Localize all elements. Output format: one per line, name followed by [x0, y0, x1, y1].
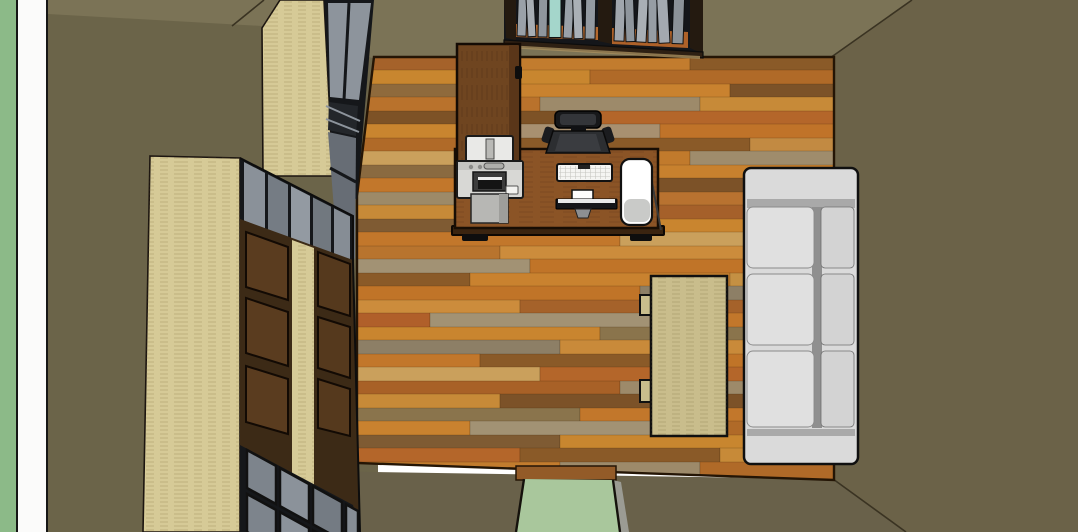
right-wall	[830, 0, 1078, 532]
floor-plank	[430, 313, 650, 328]
floor-plank	[700, 97, 834, 112]
sofa-armrest-shadow-bottom	[747, 429, 855, 436]
book	[614, 0, 626, 41]
floor-plank	[357, 273, 470, 287]
grass-edge-line	[16, 0, 18, 532]
white-chair-shade	[624, 199, 650, 222]
sofa-back-cushion	[821, 274, 854, 345]
floor-plank	[357, 394, 500, 409]
tall-cabinet-top-grain	[262, 0, 333, 176]
chair-headrest-pad	[560, 114, 596, 125]
glass-pane	[291, 186, 310, 246]
floor-plank	[357, 151, 470, 166]
floor-plank	[357, 408, 580, 422]
sofa-seat-cushion	[747, 351, 814, 427]
sofa-back-cushions	[821, 207, 854, 427]
door-panel	[318, 317, 350, 378]
doorway	[516, 466, 629, 532]
sofa-back-cushion	[821, 207, 854, 268]
floor-plank	[520, 448, 720, 463]
floor-plank	[357, 354, 480, 368]
book	[526, 0, 536, 37]
printer-feed-slot	[484, 163, 504, 169]
book	[672, 0, 685, 44]
floor-plank	[357, 246, 500, 260]
door-panel	[318, 252, 350, 316]
glass-pane	[334, 208, 350, 262]
floor-plank	[690, 57, 834, 71]
printer-output-tray	[506, 186, 518, 194]
glass-pane	[313, 197, 331, 254]
coffee-table	[640, 276, 727, 436]
book	[585, 0, 596, 39]
keyboard-function-row	[578, 165, 590, 169]
paper-stack	[478, 180, 502, 189]
floor-plank	[357, 448, 520, 463]
door-opening-green	[516, 479, 620, 532]
floor-plank	[357, 84, 470, 98]
monitor-foot	[575, 209, 591, 218]
floor-plank	[357, 381, 620, 395]
floor-plank	[357, 124, 460, 139]
floor-plank	[730, 84, 834, 98]
floor-plank	[357, 259, 530, 274]
desk-foot-left	[462, 234, 488, 241]
sofa-seat-cushions	[747, 207, 814, 427]
monitor-top-edge	[558, 199, 615, 203]
floor-plank	[690, 151, 834, 166]
floor-plank	[357, 435, 560, 449]
floor-plank	[357, 367, 540, 382]
outside-strip	[0, 0, 49, 532]
door-panel	[318, 379, 350, 436]
floor-plank	[357, 421, 470, 436]
floor-plank	[357, 300, 520, 314]
printer-button	[469, 165, 473, 169]
floor-plank	[357, 313, 430, 328]
coffee-table-grain	[651, 276, 727, 436]
book	[549, 0, 561, 37]
bookcase-cabinet	[143, 156, 360, 532]
bookshelf-post-left	[504, 0, 516, 40]
desk-foot-right	[630, 234, 652, 241]
book	[648, 0, 657, 43]
floor-plank	[750, 138, 834, 152]
bookshelf-post-center	[598, 0, 612, 44]
room-render	[0, 0, 1078, 532]
chair-seatback-pad	[555, 134, 601, 151]
floor-plank	[500, 57, 690, 71]
grass	[0, 0, 16, 532]
sofa-seat-cushion	[747, 274, 814, 345]
floor-plank	[357, 327, 600, 341]
glass-pane	[244, 162, 265, 229]
sofa-seat-cushion	[747, 207, 814, 268]
book	[538, 0, 548, 37]
book	[624, 0, 635, 42]
floor-plank	[660, 124, 834, 139]
floor-plank	[590, 70, 834, 85]
sofa-back-cushion	[821, 351, 854, 427]
book	[656, 0, 670, 43]
book	[572, 0, 583, 39]
paper-tray-slot	[486, 139, 494, 159]
floor-plank	[357, 286, 640, 301]
glass-pane	[268, 174, 288, 237]
cpu-box-shade	[499, 194, 508, 223]
sofa	[744, 168, 858, 464]
scene-svg	[0, 0, 1078, 532]
paper-stack-top	[478, 177, 502, 180]
walkway	[18, 0, 46, 532]
door-threshold	[516, 466, 616, 480]
hutch-handle	[515, 66, 522, 79]
bookcase-top-grain	[143, 156, 240, 532]
printer-button	[478, 165, 482, 169]
floor-plank	[357, 340, 560, 355]
floor-plank	[540, 97, 700, 112]
book	[636, 0, 649, 42]
door-panel	[246, 366, 288, 434]
bookshelf-post-right	[690, 0, 703, 54]
